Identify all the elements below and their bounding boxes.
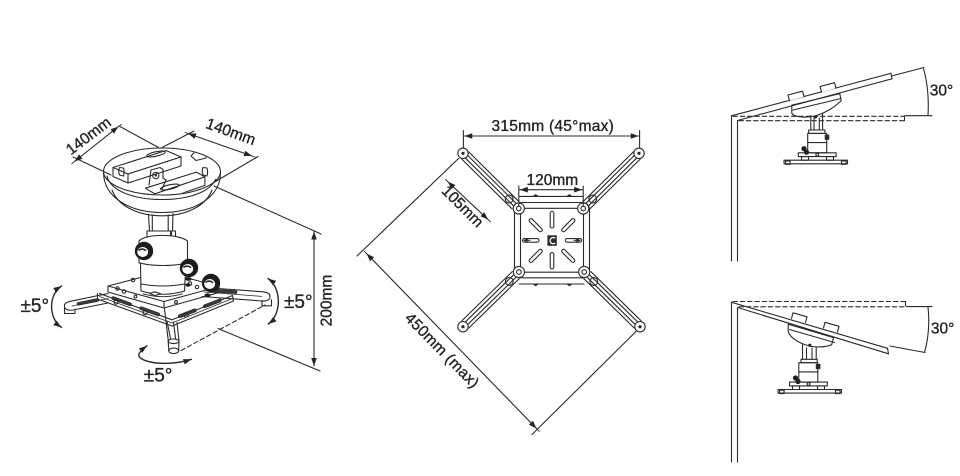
svg-text:±5°: ±5° — [284, 292, 313, 313]
svg-text:315mm (45°max): 315mm (45°max) — [492, 118, 615, 135]
svg-text:±5°: ±5° — [21, 296, 50, 317]
svg-text:105mm: 105mm — [438, 183, 487, 232]
svg-text:140mm: 140mm — [203, 115, 257, 149]
svg-text:200mm: 200mm — [319, 275, 336, 327]
svg-text:30°: 30° — [931, 321, 954, 338]
svg-text:120mm: 120mm — [527, 172, 579, 189]
svg-text:±5°: ±5° — [144, 366, 173, 387]
svg-text:30°: 30° — [930, 83, 953, 100]
